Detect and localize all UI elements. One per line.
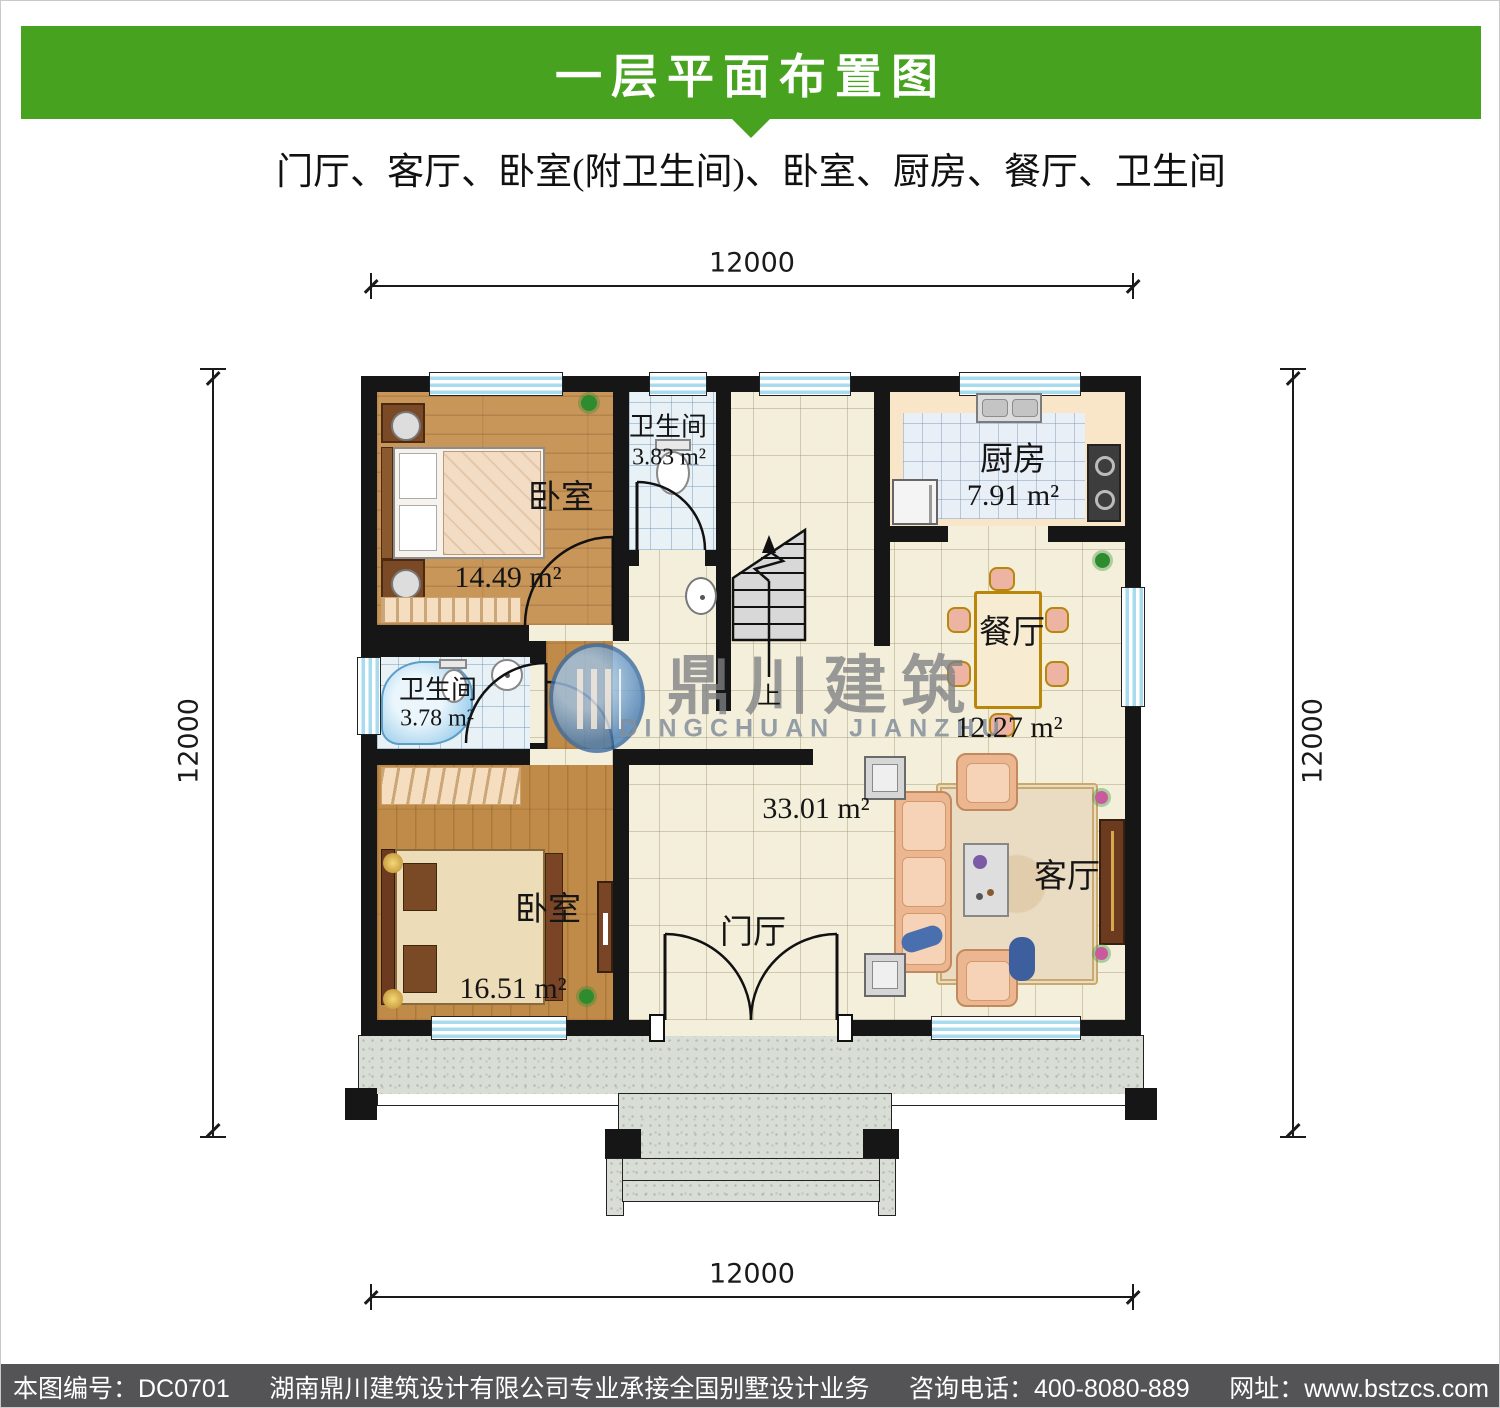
label-entry-hall: 门厅 bbox=[720, 905, 786, 953]
area-bedroom-top: 14.49 m² bbox=[454, 561, 561, 595]
door-arc-bath-top bbox=[637, 482, 705, 550]
label-living: 客厅 bbox=[1034, 849, 1100, 897]
label-bedroom-bottom: 卧室 bbox=[515, 882, 581, 930]
label-bath-left: 卫生间 bbox=[399, 670, 477, 707]
footer-bar: 本图编号：DC0701 湖南鼎川建筑设计有限公司专业承接全国别墅设计业务 咨询电… bbox=[1, 1364, 1500, 1408]
label-kitchen: 厨房 bbox=[980, 432, 1046, 480]
label-bedroom-top: 卧室 bbox=[528, 470, 594, 518]
footer-website: 网址：www.bstzcs.com bbox=[1229, 1369, 1489, 1405]
area-kitchen: 7.91 m² bbox=[967, 479, 1059, 513]
area-dining: 12.27 m² bbox=[955, 711, 1062, 745]
watermark-cn: 鼎川建筑 bbox=[667, 635, 979, 727]
label-bath-top: 卫生间 bbox=[629, 407, 707, 444]
footer-drawing-number: 本图编号：DC0701 bbox=[13, 1369, 230, 1405]
area-bedroom-bottom: 16.51 m² bbox=[459, 972, 566, 1006]
area-entry-hall: 33.01 m² bbox=[762, 792, 869, 826]
footer-company: 湖南鼎川建筑设计有限公司专业承接全国别墅设计业务 bbox=[269, 1369, 869, 1405]
label-dining: 餐厅 bbox=[979, 605, 1045, 653]
area-bath-top: 3.83 m² bbox=[632, 445, 706, 472]
watermark-en: DINGCHUAN JIANZHU bbox=[619, 715, 1006, 744]
stairs-up-label: 上 bbox=[757, 676, 781, 711]
floor-plan-page: 一层平面布置图 门厅、客厅、卧室(附卫生间)、卧室、厨房、餐厅、卫生间 1200… bbox=[0, 0, 1500, 1408]
door-arc-bath-left bbox=[466, 663, 546, 743]
footer-phone: 咨询电话：400-8080-889 bbox=[909, 1369, 1190, 1405]
area-bath-left: 3.78 m² bbox=[400, 706, 474, 733]
